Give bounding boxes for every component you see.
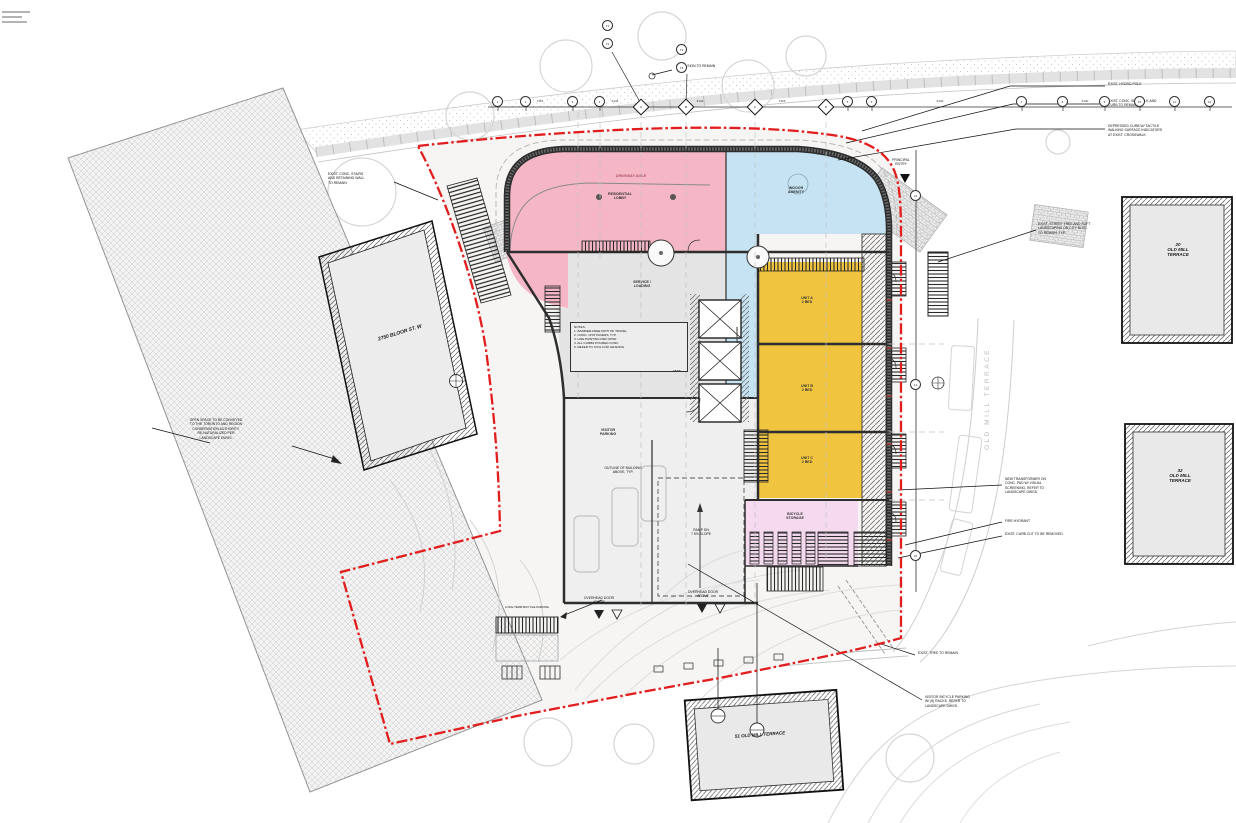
site-plan-drawing: [0, 0, 1236, 823]
keynote-tag: T3: [676, 44, 687, 55]
grid-bubble: 6: [866, 96, 877, 107]
annotation: FIRE HYDRANT: [1005, 519, 1030, 523]
keynote-tag: T2: [602, 38, 613, 49]
annotation-bike-parking: LONG-TERM BICYCLE PARKING: [490, 606, 564, 610]
grid-bubble: 5: [842, 96, 853, 107]
scale-strip: [14, 815, 48, 820]
grid-bubble: 11: [1169, 96, 1180, 107]
label-vestibule: VEST.: [664, 370, 690, 374]
annotation: EXIST. CONC. SIDEWALK AND CURB TO REMAIN: [1108, 99, 1156, 108]
label-corridor: CORRIDOR: [736, 290, 740, 380]
grid-bubble-right: 14: [910, 379, 921, 390]
grid-bubble: 9: [1099, 96, 1110, 107]
grid-bubble: 10: [1134, 96, 1145, 107]
grid-bubble: 12: [1204, 96, 1215, 107]
site-plan-canvas: EXIST. HYDRO POLE EXIST. CONC. SIDEWALK …: [0, 0, 1236, 823]
label-visitor-parking: VISITOR PARKING: [586, 428, 630, 437]
annotation-open-space: OPEN SPACE TO BE CONVEYED TO THE TORONTO…: [166, 418, 266, 440]
dimension-text: 7315: [525, 99, 555, 103]
annotation-door: OVERHEAD DOOR ABOVE: [578, 596, 620, 605]
dimension-text: 9144: [600, 99, 630, 103]
label-unit-c: UNIT C 2 BED: [782, 456, 832, 465]
grid-bubble-right: 15: [910, 550, 921, 561]
annotation-notes: NOTES: 1. BARRIER-FREE PATH OF TRAVEL 2.…: [574, 325, 684, 349]
street-name-old-mill-terrace: OLD MILL TERRACE: [984, 310, 991, 450]
annotation-principal-entry: PRINCIPAL ENTRY: [884, 158, 918, 167]
dimension-text: 6100: [1070, 99, 1100, 103]
grid-bubble: 3: [567, 96, 578, 107]
annotation: DEPRESSED CURB W/ TACTILE WALKING SURFAC…: [1108, 124, 1162, 137]
elevator-shafts: [690, 294, 749, 422]
annotation: EXIST. STREET TREE AND SOFT LANDSCAPING …: [1038, 222, 1090, 235]
keynote-tag: T4: [676, 62, 687, 73]
label-building-20: 20 OLD MILL TERRACE: [1136, 242, 1220, 257]
label-driveway: DRIVEWAY AISLE: [596, 174, 666, 178]
label-bike-storage: BICYCLE STORAGE: [770, 512, 820, 521]
annotation: OUTLINE OF BUILDING ABOVE, TYP.: [596, 466, 650, 475]
grid-diamond-label: B: [681, 102, 691, 112]
label-unit-b: UNIT B 2 BED: [782, 384, 832, 393]
label-service: SERVICE / LOADING: [612, 280, 672, 289]
building-20-old-mill: [1122, 197, 1232, 343]
dimension-text: 7315: [767, 99, 797, 103]
dimension-text: 9144: [685, 99, 715, 103]
annotation-ramp: RAMP DN 7.5% SLOPE: [666, 528, 736, 537]
label-unit-a: UNIT A 2 BED: [782, 296, 832, 305]
building-32-old-mill: [1125, 424, 1233, 564]
annotation: EXIST. CONC. STAIRS AND RETAINING WALL T…: [328, 172, 394, 185]
building-51-old-mill: [685, 690, 844, 800]
dimension-text: 6100: [925, 99, 955, 103]
grid-bubble: 8: [1057, 96, 1068, 107]
annotation-door: OVERHEAD DOOR ABOVE: [682, 590, 724, 599]
grid-diamond-label: A: [636, 102, 646, 112]
annotation: NEW TRANSFORMER ON CONC. PAD W/ VISUAL S…: [1005, 477, 1046, 495]
grid-diamond-label: D: [821, 102, 831, 112]
grid-bubble: 1: [492, 96, 503, 107]
label-lobby: RESIDENTIAL LOBBY: [590, 192, 650, 201]
label-building-32: 32 OLD MILL TERRACE: [1138, 468, 1222, 483]
annotation: EXIST. TREE TO REMAIN: [918, 651, 958, 655]
annotation: VISITOR BICYCLE PARKING W/ (6) RACKS, RE…: [925, 695, 970, 708]
label-amenity: INDOOR AMENITY: [768, 186, 824, 195]
grid-diamond-label: C: [750, 102, 760, 112]
annotation: EXIST. HYDRO POLE: [1108, 82, 1142, 86]
grid-bubble: 7: [1016, 96, 1027, 107]
keynote-tag: T1: [602, 20, 613, 31]
grid-bubble-right: 13: [910, 190, 921, 201]
annotation: EXIST. CURB CUT TO BE REMOVED: [1005, 532, 1063, 536]
